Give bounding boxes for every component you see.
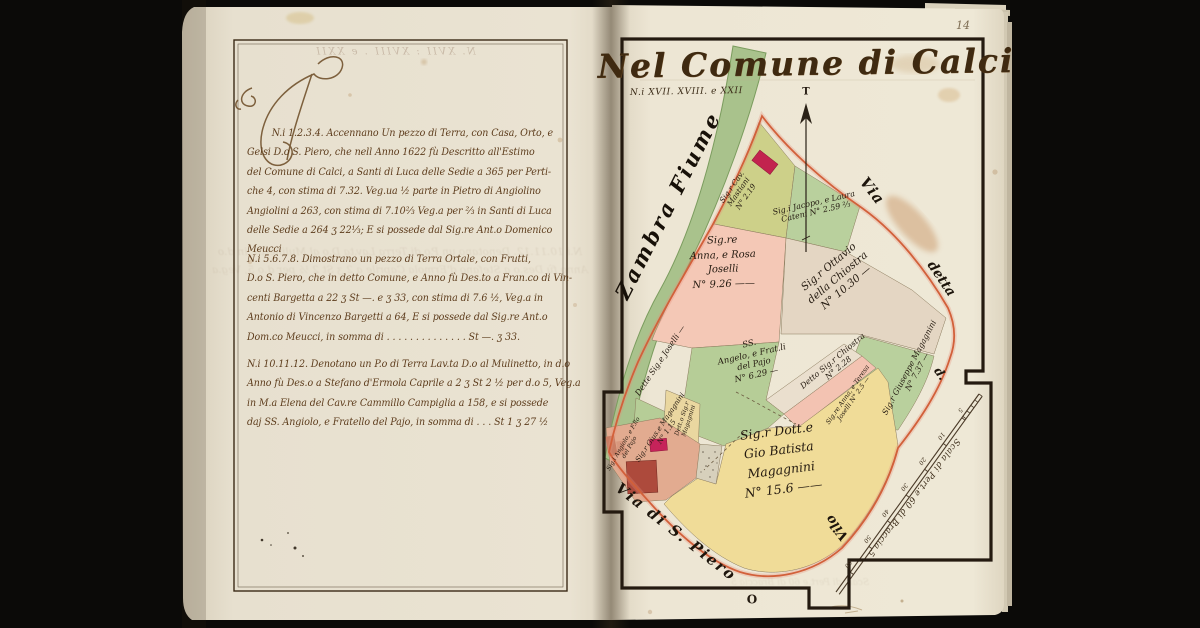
road-label-detta: detta [924, 259, 958, 300]
scale-tick: 20 [917, 456, 927, 466]
bleed-through-header: N. XVII : XVIII . e XXII [314, 47, 475, 58]
road-label-san-piero: Via di S. Piero [612, 480, 739, 584]
parcel-label-dette-joselli: Dette Sig.e Joselli — [634, 324, 688, 398]
parcel-label-della-chiostra: Sig.r Ottavio della Chiostra N° 10.30 — [796, 238, 879, 317]
manuscript-line: Anno fù Des.o a Stefano d'Ermola Caprile… [247, 374, 549, 393]
bleed-through-text: N.i 10.11.12. Denotano un P.o di Terra L… [218, 246, 582, 258]
manuscript-line: delle Sedie a 264 ʒ 22⅓; E si possede da… [247, 221, 549, 240]
parcel-label-del-pajo: SS. Angelo, e Frat.li del Pajo N° 6.29 — [714, 331, 791, 388]
scale-tick: 5 [956, 406, 964, 413]
road-label-d: d. [931, 365, 949, 383]
manuscript-line: che 4, con stima di 7.32. Veg.ua ½ parte… [247, 182, 549, 201]
compass-south-label: O [747, 593, 757, 606]
scale-label: Scala di Pert.e 60 di Braccia 5 [865, 436, 961, 557]
manuscript-line: Antonio di Vincenzo Bargetti a 64, E si … [247, 308, 549, 327]
manuscript-line: Angiolini a 263, con stima di 7.10⅔ Veg.… [247, 202, 549, 221]
bleed-through-scale-text: Scala di Pert.e 60 di Braccia 5 [731, 578, 869, 588]
manuscript-line: Gelsi D.o S. Piero, che nell Anno 1622 f… [247, 143, 549, 162]
parcel-label-mastiani: Sig.r Cav. Mastiani N° 2.19 [718, 170, 759, 214]
map-subtitle: N.i XVII. XVIII. e XXII [630, 86, 743, 98]
map-title: Nel Comune di Calci [597, 43, 1014, 85]
scale-tick: 40 [880, 508, 890, 518]
manuscript-line: daj SS. Angiolo, e Fratello del Pajo, in… [247, 413, 549, 432]
bleed-through-text: Anno fù Des.o a Stefano d'Ermola Caprile… [212, 264, 588, 276]
manuscript-line: N.i 10.11.12. Denotano un P.o di Terra L… [247, 355, 549, 374]
road-label-vilo: Vilo [824, 511, 853, 542]
parcel-label-cateni: Sig.i Jacopo, e Laura Cateni N° 2.59 ⅔ [772, 190, 858, 226]
parcel-label-gio-batista-magagnini: Sig.r Dott.e Gio Batista Magagnini N° 15… [737, 417, 824, 503]
scale-tick: 60 [843, 559, 853, 569]
manuscript-line: in M.a Elena del Cav.re Cammillo Campigl… [247, 394, 549, 413]
scale-tick: 30 [899, 482, 909, 492]
paragraph-3: N.i 10.11.12. Denotano un P.o di Terra L… [247, 355, 549, 433]
manuscript-line: del Comune di Calci, a Santi di Luca del… [247, 163, 549, 182]
manuscript-line: Dom.co Meucci, in somma di . . . . . . .… [247, 328, 549, 347]
road-label-via: Via [856, 174, 887, 208]
manuscript-line: N.i 1.2.3.4. Accennano Un pezzo di Terra… [247, 124, 549, 143]
compass-north-label: T [802, 87, 809, 98]
parcel-label-joselli: Sig.re Anna, e Rosa Joselli N° 9.26 —— [689, 233, 757, 293]
manuscript-book-scan: N. XVII : XVIII . e XXII N.i 1.2.3.4. Ac… [0, 0, 1200, 628]
manuscript-line: centi Bargetta a 22 ʒ St —. e ʒ 33, con … [247, 289, 549, 308]
paragraph-1: N.i 1.2.3.4. Accennano Un pezzo di Terra… [247, 124, 549, 260]
page-number: 14 [956, 19, 970, 32]
scale-tick: 10 [936, 431, 946, 441]
